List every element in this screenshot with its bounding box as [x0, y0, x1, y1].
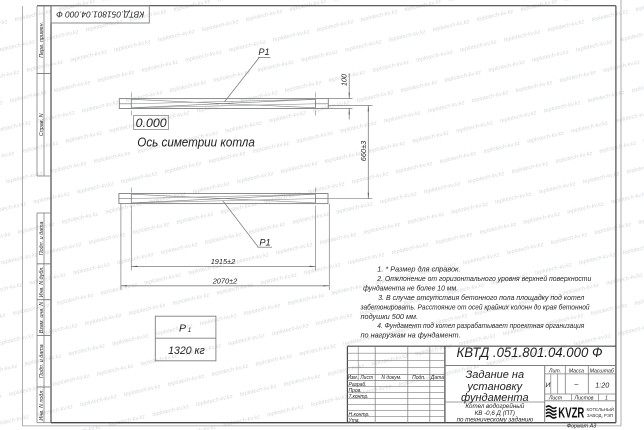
svg-text:1. * Размер для справок.: 1. * Размер для справок.: [377, 265, 460, 274]
svg-text:забетонировать. Расстояние от: забетонировать. Расстояние от осей крайн…: [360, 302, 590, 311]
svg-text:1: 1: [605, 396, 608, 402]
svg-text:N докум.: N докум.: [381, 375, 401, 381]
svg-text:Подп. и дата: Подп. и дата: [39, 344, 45, 378]
svg-text:1: 1: [188, 328, 191, 334]
svg-text:KVZR: KVZR: [558, 405, 584, 422]
svg-text:Дата: Дата: [430, 375, 444, 381]
svg-text:КВТД.051801.04.000 Ф: КВТД.051801.04.000 Ф: [56, 9, 144, 19]
svg-text:фундамента: фундамента: [461, 392, 529, 404]
svg-text:И: И: [545, 382, 550, 389]
svg-text:4. Фундамент под котел разраба: 4. Фундамент под котел разрабатывает про…: [377, 321, 584, 330]
svg-text:Формат А3: Формат А3: [567, 424, 597, 430]
svg-text:по техническому заданию: по техническому заданию: [457, 416, 534, 423]
svg-text:Утв.: Утв.: [349, 418, 360, 424]
svg-text:Масса: Масса: [569, 369, 584, 375]
svg-text:Лист: Лист: [548, 396, 563, 402]
svg-text:1320 кг: 1320 кг: [168, 345, 205, 357]
svg-text:Ось симетрии котла: Ось симетрии котла: [137, 134, 255, 149]
svg-text:1915±2: 1915±2: [211, 257, 236, 266]
svg-text:Задание на: Задание на: [466, 369, 525, 381]
svg-text:0.000: 0.000: [136, 116, 167, 130]
svg-text:Инв. N дубл.: Инв. N дубл.: [39, 266, 45, 297]
svg-text:Листов: Листов: [574, 396, 594, 402]
svg-text:Лит.: Лит.: [548, 369, 561, 375]
svg-text:1:20: 1:20: [595, 380, 609, 389]
svg-text:Взам. инв. N: Взам. инв. N: [39, 302, 45, 334]
svg-text:660±3: 660±3: [359, 140, 368, 161]
svg-text:Р1: Р1: [259, 237, 270, 247]
svg-text:Р1: Р1: [258, 47, 269, 57]
svg-text:фундамента не более 10 мм.: фундамента не более 10 мм.: [363, 284, 458, 293]
svg-text:Перв. примен.: Перв. примен.: [39, 22, 45, 58]
svg-text:установку: установку: [466, 381, 523, 393]
svg-text:КОТЕЛЬНЫЙ: КОТЕЛЬНЫЙ: [587, 407, 615, 412]
svg-text:подушки 500 мм.: подушки 500 мм.: [361, 312, 419, 321]
svg-text:Р: Р: [179, 323, 186, 335]
svg-text:Подп.: Подп.: [412, 375, 425, 381]
svg-text:Т.контр.: Т.контр.: [349, 394, 369, 400]
svg-text:ЗАВОД, РЭП: ЗАВОД, РЭП: [587, 413, 613, 418]
svg-text:Изм.: Изм.: [347, 375, 358, 381]
svg-text:Инв. N подл.: Инв. N подл.: [39, 389, 45, 421]
svg-text:100: 100: [340, 73, 349, 86]
svg-text:Справ. N: Справ. N: [39, 113, 45, 136]
svg-text:КВТД .051.801.04.000 Ф: КВТД .051.801.04.000 Ф: [457, 345, 603, 360]
svg-text:Подп. и дата: Подп. и дата: [39, 222, 45, 256]
svg-text:Лист: Лист: [359, 375, 373, 381]
svg-text:2. Отклонение от горизонтально: 2. Отклонение от горизонтального уровня …: [376, 274, 591, 283]
svg-text:Масштаб: Масштаб: [590, 369, 615, 375]
svg-text:по нагрузкам на фундамент.: по нагрузкам на фундамент.: [361, 331, 461, 340]
svg-text:2070±2: 2070±2: [212, 276, 238, 285]
svg-text:3. В случае отсутствия бетонно: 3. В случае отсутствия бетонного пола пл…: [378, 293, 584, 302]
